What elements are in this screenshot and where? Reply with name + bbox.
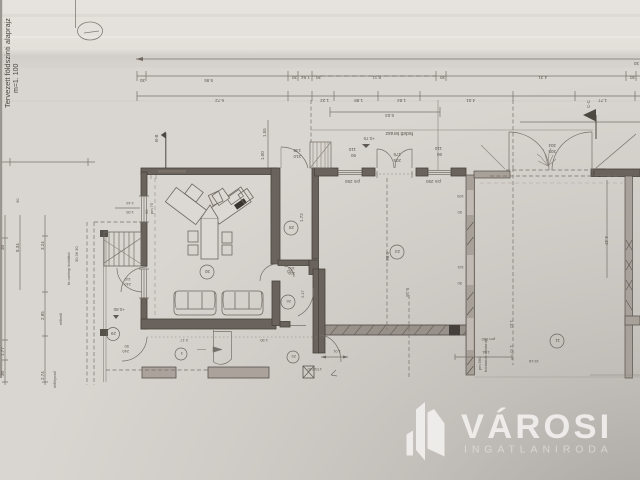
svg-text:1.77: 1.77: [0, 347, 5, 356]
svg-text:24: 24: [394, 249, 400, 254]
svg-text:100: 100: [288, 266, 295, 271]
svg-text:29: 29: [110, 331, 116, 336]
svg-text:2.17: 2.17: [179, 338, 188, 343]
svg-text:fa csehop korláttal: fa csehop korláttal: [66, 252, 71, 285]
svg-text:1.22: 1.22: [320, 98, 329, 103]
svg-text:pm 250: pm 250: [425, 179, 441, 184]
svg-text:148: 148: [293, 148, 301, 153]
svg-text:+0.70: +0.70: [363, 136, 375, 141]
svg-text:5.03: 5.03: [385, 113, 394, 118]
svg-text:2.74: 2.74: [40, 371, 45, 380]
svg-text:B-B: B-B: [154, 134, 159, 142]
svg-text:1.55: 1.55: [262, 128, 267, 137]
svg-text:240: 240: [124, 282, 131, 287]
svg-text:240: 240: [122, 349, 129, 354]
svg-text:fedett terasz: fedett terasz: [385, 130, 413, 136]
svg-text:50: 50: [457, 281, 462, 286]
svg-text:11: 11: [555, 338, 560, 343]
svg-text:30 36 30: 30 36 30: [74, 246, 79, 262]
svg-text:4.42: 4.42: [604, 236, 609, 245]
svg-text:110: 110: [348, 147, 356, 152]
svg-text:1.44: 1.44: [125, 201, 134, 206]
svg-text:1.84: 1.84: [397, 98, 406, 103]
svg-text:30: 30: [15, 198, 20, 203]
svg-text:210: 210: [293, 154, 301, 159]
svg-text:105: 105: [457, 194, 464, 199]
svg-text:bontandó ablaknál: bontandó ablaknál: [483, 339, 488, 372]
svg-text:30: 30: [439, 75, 445, 80]
svg-text:50: 50: [457, 210, 462, 215]
svg-text:1.05: 1.05: [125, 210, 134, 215]
svg-text:pm 250: pm 250: [344, 179, 360, 184]
svg-text:1.54: 1.54: [301, 75, 310, 80]
svg-text:1.01: 1.01: [332, 349, 341, 354]
svg-text:0.86: 0.86: [385, 252, 390, 261]
svg-text:pm 75: pm 75: [149, 202, 154, 214]
svg-text:115: 115: [457, 265, 464, 270]
svg-text:4.31: 4.31: [538, 75, 547, 80]
svg-text:25: 25: [291, 354, 296, 359]
svg-text:28: 28: [288, 225, 294, 230]
svg-text:19.18: 19.18: [528, 359, 539, 364]
svg-text:205: 205: [288, 271, 295, 276]
svg-text:205: 205: [393, 158, 401, 163]
svg-text:110: 110: [124, 277, 131, 282]
svg-text:1.77: 1.77: [598, 98, 607, 103]
svg-text:C-C: C-C: [586, 99, 591, 108]
svg-text:előtető: előtető: [58, 312, 63, 325]
svg-text:1.88: 1.88: [354, 98, 363, 103]
svg-text:1.72: 1.72: [299, 213, 304, 222]
svg-text:m=1. 100: m=1. 100: [13, 64, 20, 93]
svg-text:30: 30: [0, 370, 5, 376]
svg-text:3.24: 3.24: [40, 241, 45, 250]
svg-text:30: 30: [633, 61, 639, 66]
svg-text:2.85: 2.85: [40, 311, 45, 320]
svg-text:30: 30: [0, 244, 5, 250]
svg-text:6.72: 6.72: [215, 98, 224, 103]
svg-text:30: 30: [291, 75, 297, 80]
svg-text:1.90: 1.90: [259, 338, 268, 343]
svg-text:előlépcső: előlépcső: [52, 370, 57, 388]
svg-text:30: 30: [629, 75, 635, 80]
svg-text:170/240: 170/240: [307, 367, 322, 372]
svg-text:5.16: 5.16: [405, 288, 410, 297]
svg-text:VÁROSI: VÁROSI: [461, 406, 612, 446]
svg-text:175: 175: [393, 152, 401, 157]
svg-text:+0.80: +0.80: [113, 307, 125, 312]
svg-text:1.70: 1.70: [509, 345, 514, 354]
svg-text:4.01: 4.01: [466, 98, 475, 103]
svg-text:90: 90: [350, 153, 356, 158]
svg-text:26: 26: [286, 299, 291, 304]
svg-text:1.10: 1.10: [509, 320, 514, 329]
svg-text:2.17: 2.17: [300, 289, 305, 298]
svg-text:30: 30: [204, 269, 210, 274]
svg-text:Tervezett földszinti alaprajz: Tervezett földszinti alaprajz: [3, 18, 12, 108]
svg-text:1.00: 1.00: [260, 151, 265, 160]
svg-text:5.95: 5.95: [204, 78, 213, 83]
svg-text:pm 560: pm 560: [477, 356, 482, 370]
svg-text:304: 304: [548, 143, 556, 148]
svg-text:INGATLANIRODA: INGATLANIRODA: [464, 444, 613, 456]
svg-text:8.34: 8.34: [15, 243, 20, 252]
svg-text:110: 110: [434, 146, 442, 151]
svg-text:30: 30: [139, 78, 145, 83]
svg-text:90: 90: [436, 152, 442, 157]
svg-text:90: 90: [124, 344, 129, 349]
